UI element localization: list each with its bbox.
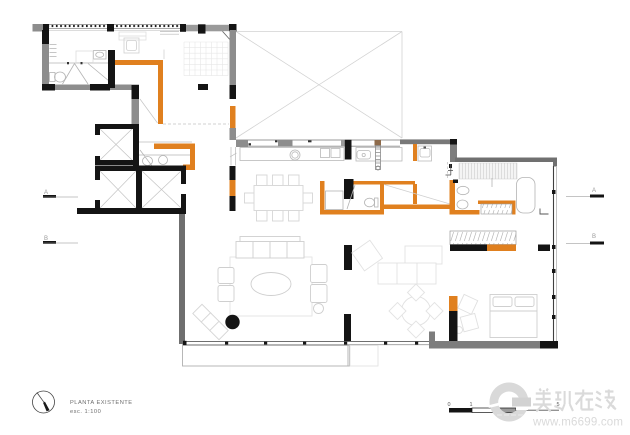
svg-text:0: 0 bbox=[448, 402, 451, 408]
svg-text:B: B bbox=[592, 234, 596, 240]
svg-text:www.m6699.com: www.m6699.com bbox=[532, 417, 623, 429]
svg-text:1: 1 bbox=[470, 402, 473, 408]
svg-text:esc. 1:100: esc. 1:100 bbox=[70, 409, 101, 415]
svg-text:A: A bbox=[592, 188, 596, 194]
svg-text:PLANTA EXISTENTE: PLANTA EXISTENTE bbox=[70, 400, 133, 406]
